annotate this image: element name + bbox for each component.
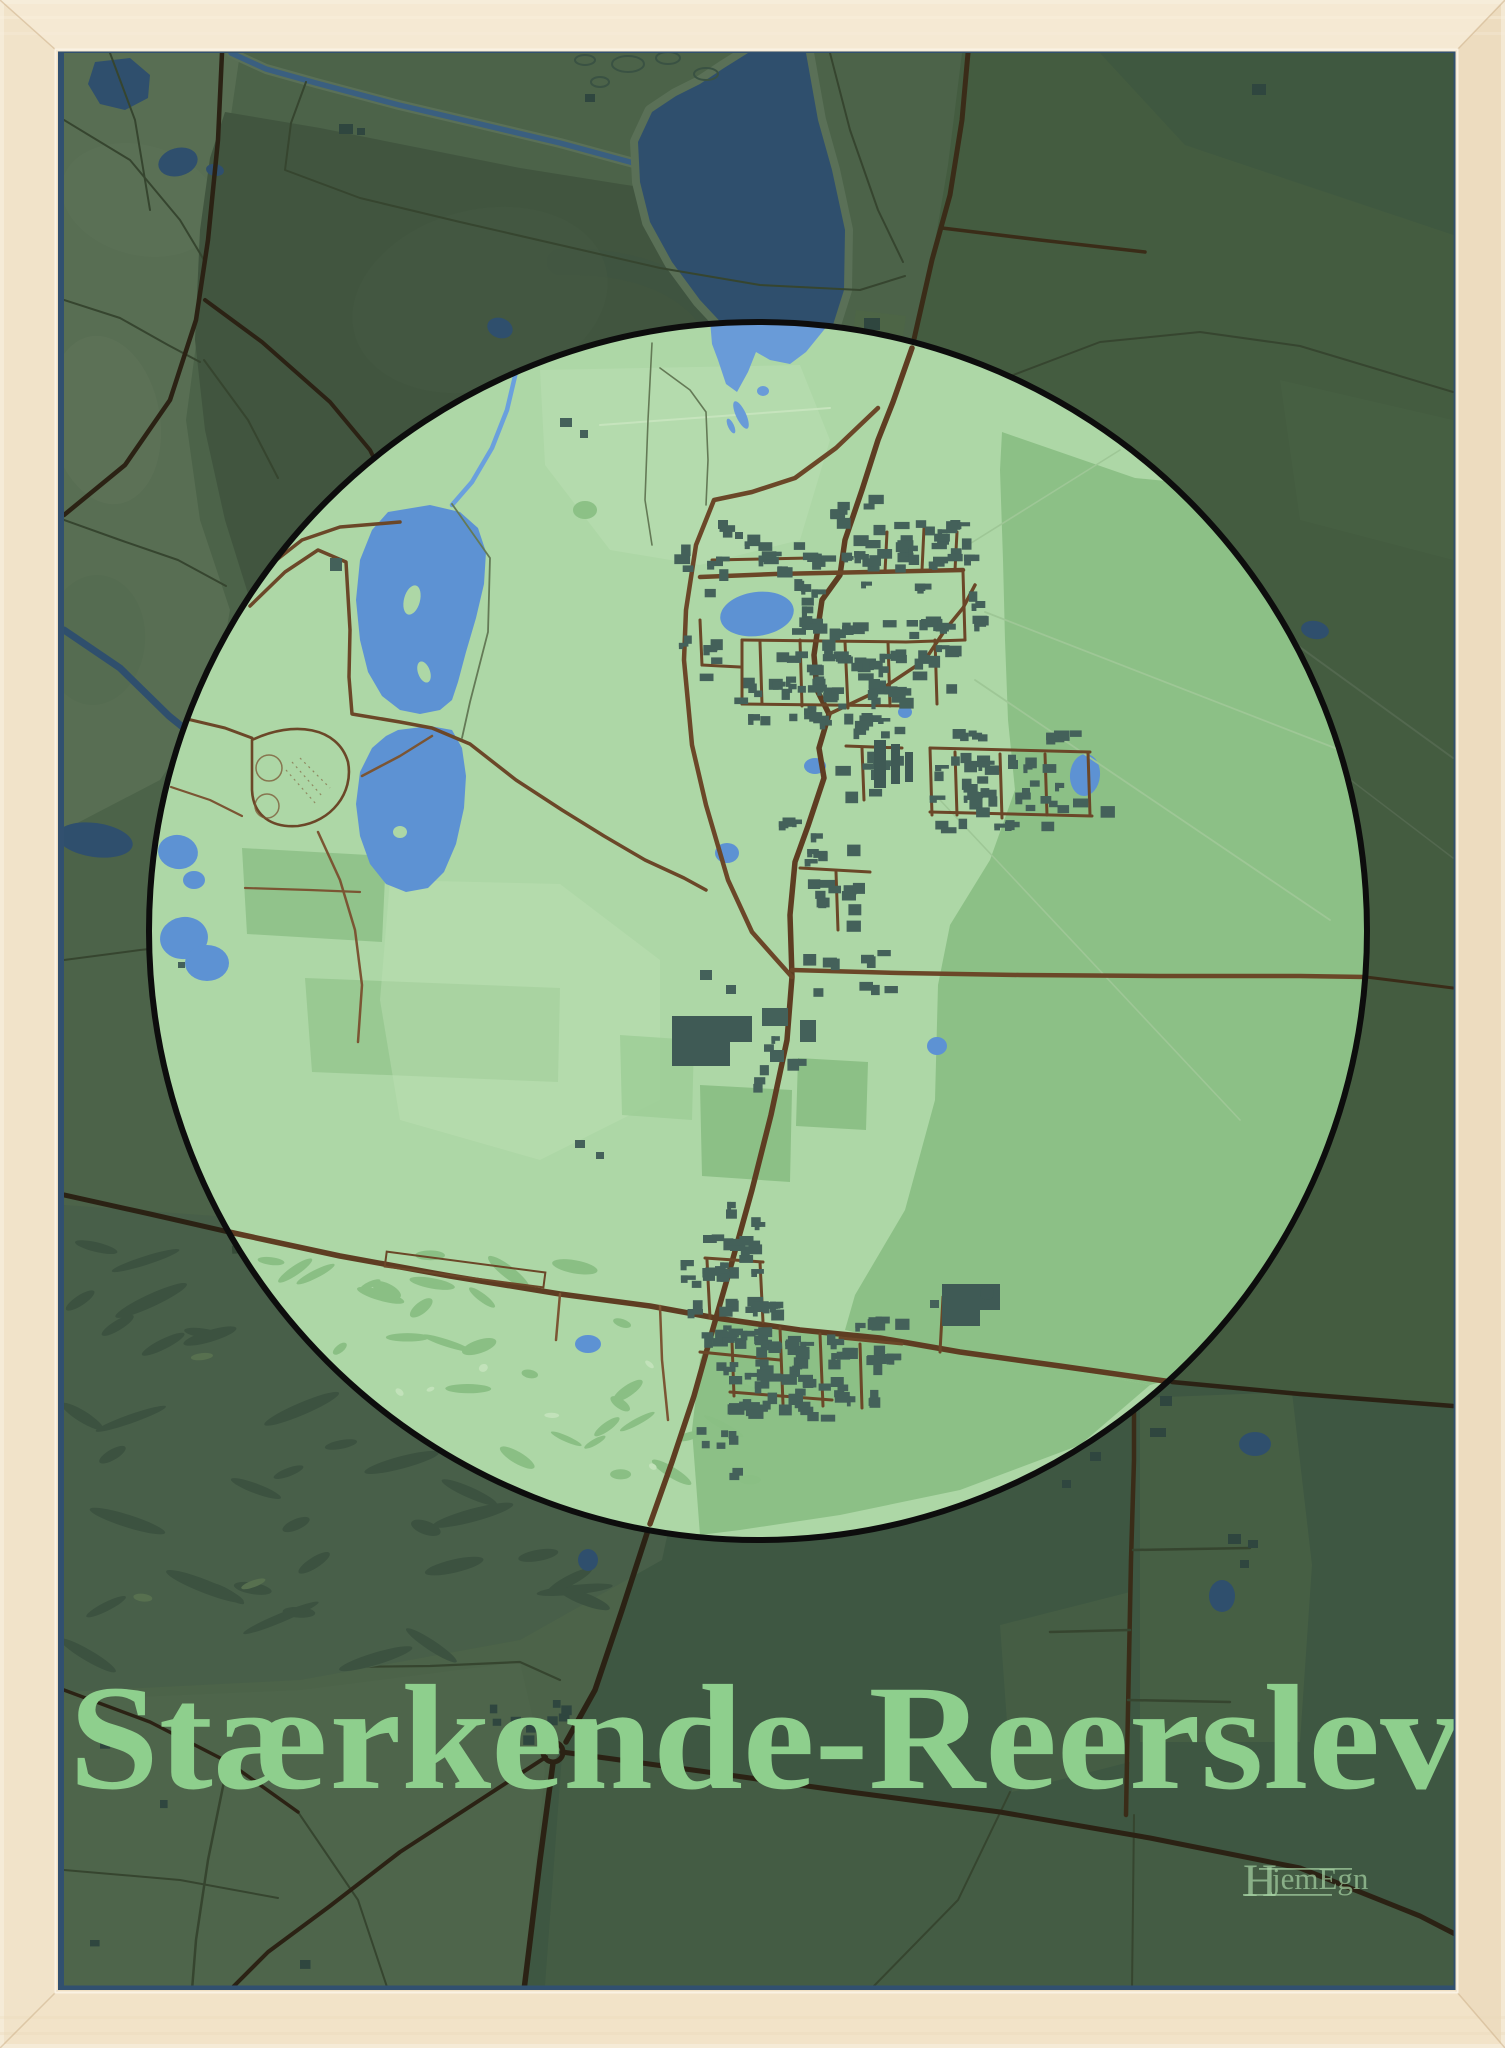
svg-text:Stærkende-Reerslev: Stærkende-Reerslev	[69, 1655, 1461, 1821]
svg-text:jemEgn: jemEgn	[1271, 1861, 1369, 1896]
